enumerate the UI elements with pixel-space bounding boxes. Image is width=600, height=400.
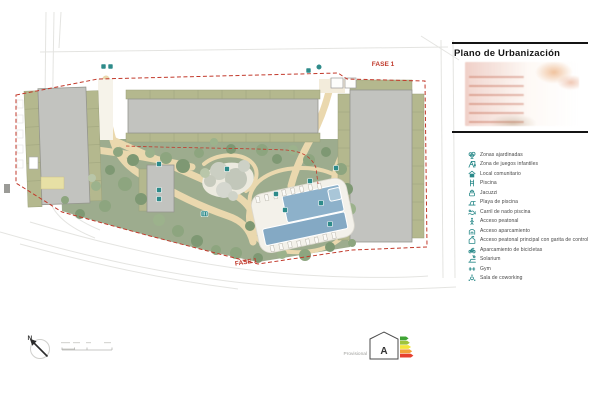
north-label: N [28,335,33,342]
parking-access-icon [468,227,476,235]
legend: Zonas ajardinadas Zona de juegos infanti… [468,150,592,283]
gym-marker [157,188,162,193]
jacuzzi-icon [468,189,476,197]
legend-item: Acceso peatonal [468,217,592,227]
legend-item-label: Zonas ajardinadas [480,152,523,158]
pool-ladder-icon [468,179,476,187]
urbanization-plan-page: FASE 1 FASE 1 N Provisio [0,0,600,400]
terrace-structure [29,157,38,169]
legend-item: Acceso peatonal principal con garita de … [468,236,592,246]
pool-marker [274,192,279,197]
north-entrance-path [98,79,113,140]
legend-item-label: Gym [480,266,491,272]
left-parking-notches [17,100,23,108]
legend-item: Gym [468,264,592,274]
energy-rating-letter: A [380,346,387,357]
coworking-icon [468,274,476,282]
gym-icon [468,265,476,273]
building-top [126,90,320,142]
legend-item: Solarium [468,255,592,265]
main-pedestrian-access-marker [316,64,322,70]
scale-bar [61,342,112,350]
legend-item-label: Local comunitario [480,171,521,177]
parking-access-north-marker [108,64,113,69]
legend-item-label: Acceso peatonal principal con garita de … [480,237,588,243]
panel-bottom-rule [452,131,588,133]
solarium-deck [41,177,64,189]
energy-arrows [400,337,413,358]
boundary-utility-box [4,184,10,193]
legend-item: Sala de coworking [468,274,592,284]
legend-item-label: Solarium [480,256,501,262]
garden-zones-icon [468,151,476,159]
legend-item-label: Jacuzzi [480,190,497,196]
swim-lane-icon [468,208,476,216]
jacuzzi-marker [308,179,313,184]
playground-marker [225,167,230,172]
legend-item: Zonas ajardinadas [468,150,592,160]
community-hall-marker [157,162,162,167]
phase-label-top: FASE 1 [372,61,395,68]
coworking-marker [157,197,162,202]
legend-item-label: Acceso aparcamiento [480,228,530,234]
page-title: Plano de Urbanización [454,48,592,59]
left-parking-notches-more [17,115,23,168]
legend-item: Jacuzzi [468,188,592,198]
pedestrian-access-north-marker [101,64,106,69]
pool-beach-icon [468,198,476,206]
legend-item: Piscina [468,179,592,189]
bike-parking-marker [201,211,208,217]
legend-item-label: Piscina [480,180,497,186]
jacuzzi [328,187,342,201]
legend-item: Local comunitario [468,169,592,179]
community-hall-icon [468,170,476,178]
solarium-marker [328,222,333,227]
solarium-icon [468,255,476,263]
panel-top-rule [452,42,588,44]
legend-item-label: Acceso peatonal [480,218,518,224]
energy-rating-badge: Provisional A [344,332,414,359]
playground-icon [468,160,476,168]
building-render-image [465,62,579,126]
pedestrian-access-east-marker [334,166,339,171]
guard-booth-marker [306,68,311,73]
legend-item: Aparcamiento de bicicletas [468,245,592,255]
legend-item-label: Zona de juegos infantiles [480,161,538,167]
legend-item-label: Carril de nado piscina [480,209,531,215]
bike-parking-icon [468,246,476,254]
legend-item: Playa de piscina [468,198,592,208]
guard-booth-access-icon [468,236,476,244]
lap-lane-marker [283,208,288,213]
north-arrow: N [28,335,50,359]
info-panel: Plano de Urbanización Zonas ajardinadas … [452,42,592,283]
legend-item: Acceso aparcamiento [468,226,592,236]
legend-item-label: Playa de piscina [480,199,518,205]
legend-item-label: Aparcamiento de bicicletas [480,247,542,253]
legend-item: Zona de juegos infantiles [468,160,592,170]
provisional-label: Provisional [344,351,367,357]
legend-item-label: Sala de coworking [480,275,523,281]
pool-beach-marker [319,201,324,206]
legend-item: Carril de nado piscina [468,207,592,217]
pedestrian-access-icon [468,217,476,225]
